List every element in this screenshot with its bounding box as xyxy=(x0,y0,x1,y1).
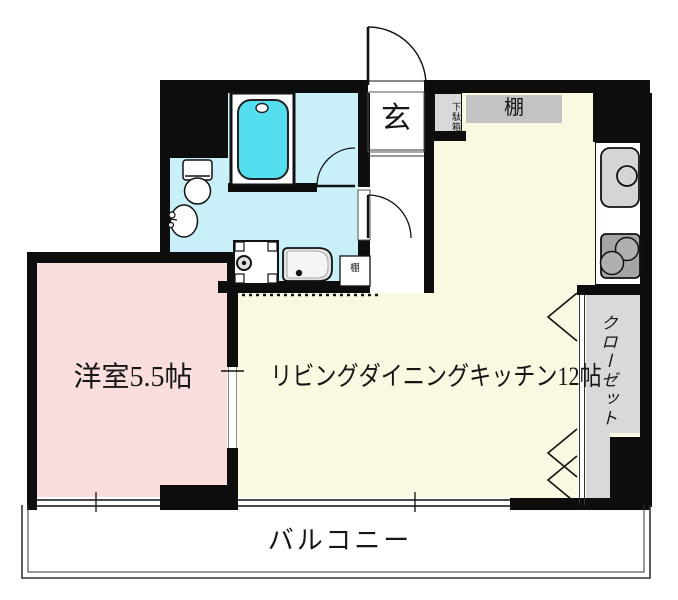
western-room-label: 洋室5.5帖 xyxy=(43,363,223,392)
washing-machine-icon xyxy=(234,241,278,284)
entrance-label: 玄 xyxy=(368,103,424,135)
bathroom-door-swing-icon xyxy=(317,148,355,186)
folding-closet-door-chevrons xyxy=(548,293,585,505)
linework-layer xyxy=(0,0,678,600)
window-symbol xyxy=(238,492,510,512)
window-symbol xyxy=(37,492,160,512)
closet-label: クローゼット xyxy=(598,306,616,436)
washroom-door-swing-icon xyxy=(358,190,411,240)
gas-stove-icon xyxy=(601,234,641,278)
floor-plan: 玄 下駄箱 棚 棚 洋室5.5帖 リビングダイニングキッチン12帖 クローゼット… xyxy=(0,0,678,600)
washbasin-icon xyxy=(169,205,198,237)
sliding-partition-opening xyxy=(221,367,244,448)
entrance-door-swing-icon xyxy=(368,27,426,93)
small-shelf-label: 棚 xyxy=(340,265,370,275)
balcony-label: バルコニー xyxy=(240,527,440,554)
kitchen-sink-icon xyxy=(601,148,639,207)
toilet-icon xyxy=(183,160,212,204)
shelf-label: 棚 xyxy=(466,98,562,119)
bathtub-icon xyxy=(231,93,294,185)
ldk-label: リビングダイニングキッチン12帖 xyxy=(270,363,556,390)
shoe-cabinet-label: 下駄箱 xyxy=(436,98,460,136)
vanity-sink-icon xyxy=(283,248,332,281)
